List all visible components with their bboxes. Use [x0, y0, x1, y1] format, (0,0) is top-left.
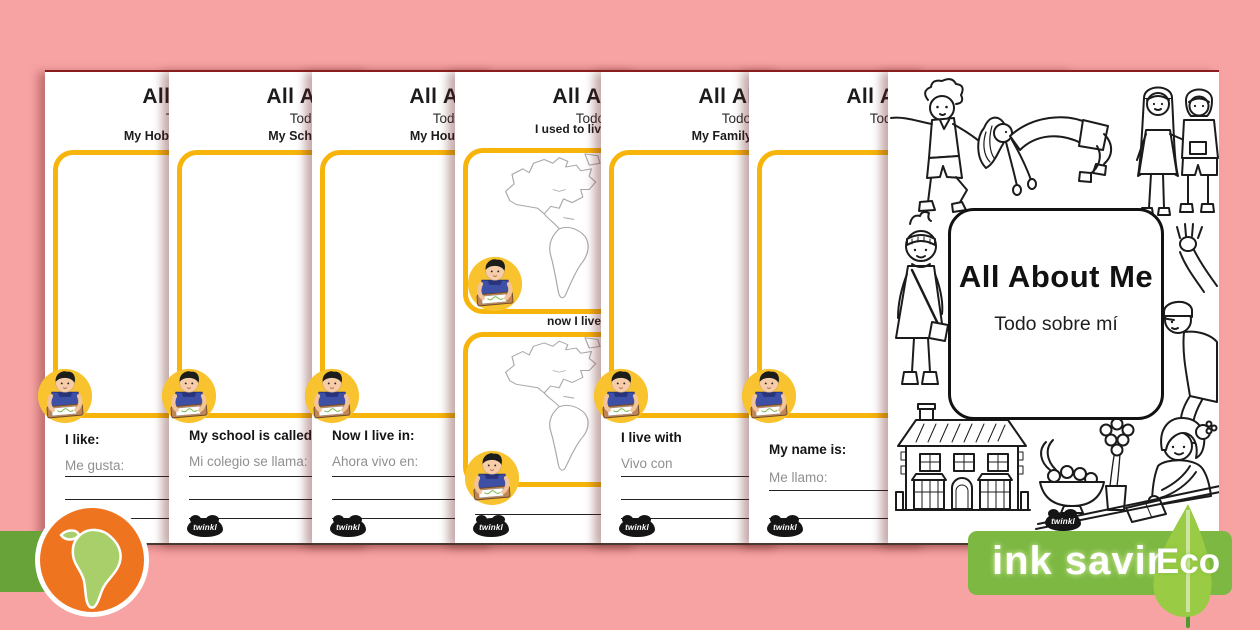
boy-writing-icon	[37, 368, 93, 424]
prompt-spanish: Me gusta:	[65, 458, 124, 473]
cover-art-two-girls-icon	[1137, 88, 1218, 216]
boy-writing-icon	[467, 256, 523, 312]
cover-art-fruit-and-flowers-icon	[1040, 419, 1134, 514]
prompt-english: My school is called:	[189, 428, 317, 443]
cover-subtitle: Todo sobre mí	[951, 313, 1161, 336]
globe-south-america-icon	[33, 501, 151, 619]
twinkl-logo-text: twinkl	[1051, 517, 1075, 526]
map-label-now-live: now I live	[547, 314, 601, 328]
boy-writing-icon	[741, 368, 797, 424]
product-preview: All About Me Todo sobre mí My Hob I like…	[0, 0, 1260, 630]
eco-label: Eco	[1148, 542, 1228, 582]
prompt-spanish: Me llamo:	[769, 470, 828, 485]
twinkl-logo: twinkl	[473, 518, 509, 537]
boy-writing-icon	[464, 450, 520, 506]
section-title-school: My Sch	[268, 129, 312, 143]
twinkl-logo: twinkl	[187, 518, 223, 537]
section-title-family: My Family	[692, 129, 752, 143]
cover-title-box: All About Me Todo sobre mí	[948, 208, 1164, 420]
prompt-spanish: Vivo con	[621, 456, 673, 471]
twinkl-logo: twinkl	[767, 518, 803, 537]
twinkl-logo-text: twinkl	[336, 523, 360, 532]
prompt-english: My name is:	[769, 442, 846, 457]
twinkl-logo-text: twinkl	[625, 523, 649, 532]
twinkl-logo: twinkl	[330, 518, 366, 537]
twinkl-logo-text: twinkl	[193, 523, 217, 532]
twinkl-logo: twinkl	[1045, 512, 1081, 531]
cover-title: All About Me	[951, 259, 1161, 295]
cover-art-satchel-girl-icon	[896, 212, 948, 384]
section-title-hobbies: My Hob	[124, 129, 169, 143]
cover-art-running-boy-icon	[891, 79, 991, 212]
boy-writing-icon	[593, 368, 649, 424]
cover-art-waving-boy-icon	[1155, 224, 1217, 444]
prompt-english: I like:	[65, 432, 100, 447]
boy-writing-icon	[304, 368, 360, 424]
prompt-english: Now I live in:	[332, 428, 415, 443]
twinkl-logo: twinkl	[619, 518, 655, 537]
map-label-used-to-live: I used to liv	[535, 122, 601, 136]
prompt-english: I live with	[621, 430, 682, 445]
cover-art-cartwheel-girl-icon	[978, 117, 1111, 195]
prompt-spanish: Mi colegio se llama:	[189, 454, 308, 469]
boy-writing-icon	[161, 368, 217, 424]
section-title-house: My Hou	[410, 129, 455, 143]
prompt-spanish: Ahora vivo en:	[332, 454, 418, 469]
cover-page: All About Me Todo sobre mí twinkl	[888, 70, 1219, 545]
twinkl-logo-text: twinkl	[479, 523, 503, 532]
twinkl-logo-text: twinkl	[773, 523, 797, 532]
